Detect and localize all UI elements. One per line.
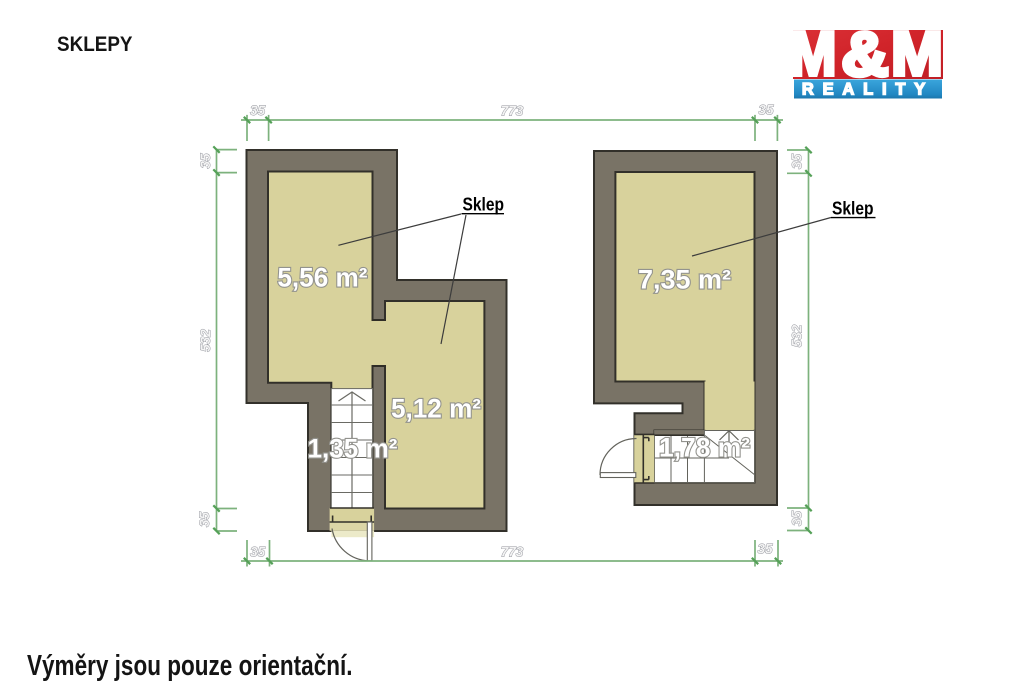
svg-text:7,35 m²: 7,35 m² bbox=[638, 265, 731, 295]
svg-text:SKLEPY: SKLEPY bbox=[57, 32, 133, 56]
svg-text:35: 35 bbox=[197, 512, 212, 528]
svg-text:Výměry jsou pouze orientační.: Výměry jsou pouze orientační. bbox=[27, 650, 353, 682]
svg-text:Sklep: Sklep bbox=[463, 194, 505, 215]
svg-text:Sklep: Sklep bbox=[832, 198, 874, 219]
svg-text:773: 773 bbox=[501, 545, 524, 560]
svg-text:35: 35 bbox=[758, 103, 774, 118]
svg-text:35: 35 bbox=[790, 154, 805, 170]
svg-text:1,35 m²: 1,35 m² bbox=[308, 434, 398, 464]
svg-text:532: 532 bbox=[790, 324, 805, 347]
svg-text:35: 35 bbox=[790, 511, 805, 527]
svg-text:532: 532 bbox=[198, 329, 213, 352]
svg-text:M: M bbox=[891, 20, 943, 89]
svg-text:M: M bbox=[790, 20, 837, 89]
svg-text:REALITY: REALITY bbox=[802, 81, 934, 99]
svg-text:35: 35 bbox=[757, 542, 773, 557]
svg-text:5,56 m²: 5,56 m² bbox=[277, 263, 367, 293]
svg-text:35: 35 bbox=[250, 103, 266, 118]
svg-text:1,78 m²: 1,78 m² bbox=[659, 433, 750, 463]
svg-text:35: 35 bbox=[250, 545, 266, 560]
svg-text:5,12 m²: 5,12 m² bbox=[391, 394, 481, 424]
svg-text:&: & bbox=[842, 21, 889, 90]
svg-text:773: 773 bbox=[501, 104, 524, 119]
svg-text:35: 35 bbox=[198, 153, 213, 169]
